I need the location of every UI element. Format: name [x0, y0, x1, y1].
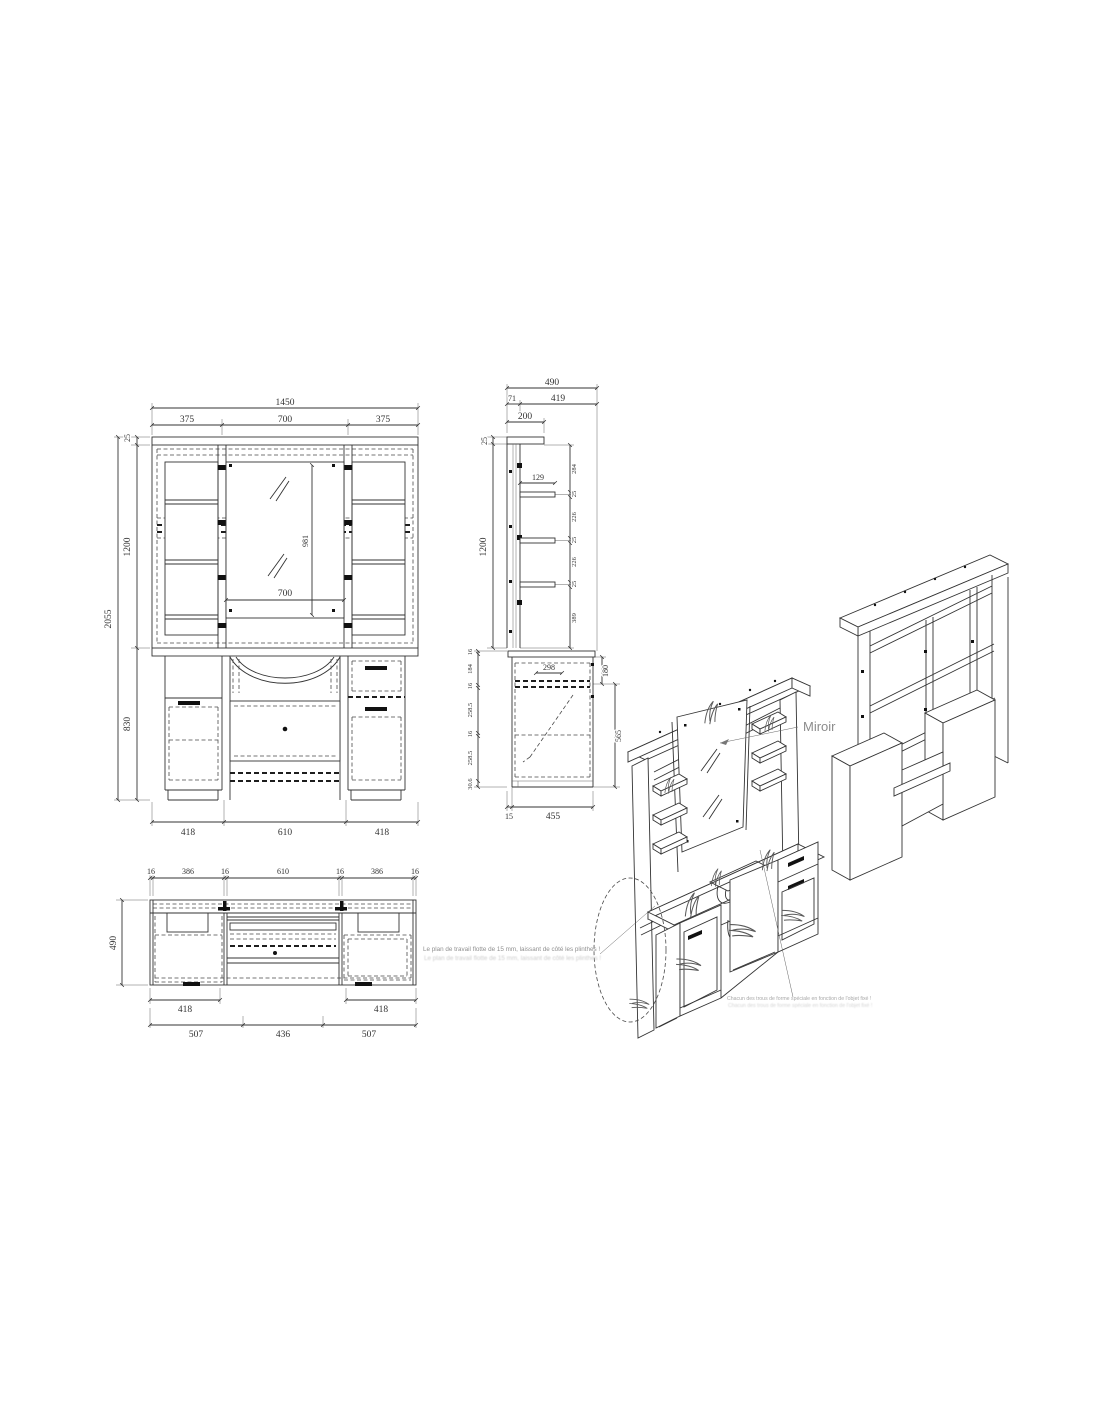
plan-knob	[273, 951, 277, 955]
front-right-shelf-tower	[352, 462, 405, 635]
dim-plan-t6: 386	[371, 867, 383, 876]
isometric-back-view	[830, 520, 1100, 890]
plan-view: 16 386 16 610 16 386 16 490 418 418 507 …	[105, 860, 445, 1045]
side-shelves	[520, 492, 555, 587]
dim-side-shelf-depth: 200	[518, 412, 533, 422]
iso-back-cornice	[840, 555, 1008, 636]
dim-side-r2: 25	[571, 491, 578, 498]
front-basin	[230, 657, 340, 693]
dim-plan-t3: 16	[221, 867, 229, 876]
iso-left-stile	[632, 758, 654, 1038]
iso-back-left-pedestal	[832, 733, 902, 880]
iso-right-pedestal	[730, 842, 818, 972]
note-fixation-ghost: Chacun des trous de forme spéciale en fo…	[728, 1003, 872, 1009]
note-fixation: Chacun des trous de forme spéciale en fo…	[727, 996, 871, 1002]
dim-plan-depth: 490	[109, 936, 119, 951]
note-worktop-ghost: Le plan de travail flotte de 15 mm, lais…	[424, 955, 601, 962]
dim-side-r3: 226	[571, 511, 578, 522]
dim-side-overall-depth: 490	[545, 378, 560, 388]
iso-mirror	[677, 700, 747, 852]
dim-plan-b2: 436	[276, 1030, 291, 1040]
dim-front-mirror-height: 981	[301, 535, 310, 547]
dim-plan-t7: 16	[411, 867, 419, 876]
front-right-door-handle	[365, 707, 387, 711]
dim-side-l4: 258.5	[467, 703, 474, 718]
front-right-pedestal	[348, 656, 405, 800]
dim-side-r5: 226	[571, 556, 578, 567]
dim-side-b2: 455	[546, 812, 561, 822]
dim-plan-left-418: 418	[178, 1005, 193, 1015]
dim-front-mid-width: 700	[278, 415, 293, 425]
side-top-board	[507, 437, 544, 444]
dim-front-upper-height: 1200	[123, 537, 133, 556]
dim-front-right-width: 375	[376, 415, 391, 425]
dim-side-front-depth: 419	[551, 394, 566, 404]
front-left-door-handle	[178, 701, 200, 705]
front-top-board	[152, 437, 418, 445]
dim-front-mirror-width: 700	[278, 589, 293, 599]
dim-front-bottom-right: 418	[375, 828, 390, 838]
front-left-shelf-tower	[165, 462, 218, 635]
dim-side-l1: 16	[467, 648, 474, 655]
dim-side-back-depth: 71	[508, 394, 516, 403]
dim-front-bottom-left: 418	[181, 828, 196, 838]
side-left-dim-column: 16 184 16 258.5 16 258.5 30.6	[467, 648, 478, 790]
side-right-dim-column: 284 25 226 25 226 25 389	[570, 445, 578, 648]
dim-plan-b1: 507	[189, 1030, 204, 1040]
dim-plan-t2: 386	[182, 867, 194, 876]
dim-side-top-thickness: 25	[480, 437, 489, 445]
dim-side-r6: 25	[571, 581, 578, 588]
dim-front-lower-height: 830	[123, 717, 133, 732]
plan-left-handle	[183, 982, 200, 986]
dim-side-r4: 25	[571, 537, 578, 544]
front-centre-drawer	[230, 701, 340, 781]
dim-plan-t5: 16	[336, 867, 344, 876]
dim-plan-right-418: 418	[374, 1005, 389, 1015]
dim-front-left-width: 375	[180, 415, 195, 425]
dim-front-total-height: 2055	[104, 609, 114, 628]
technical-drawing-sheet: 1450 375 700 375 2055 25 1200 830	[0, 0, 1100, 1422]
front-drawer-knob	[283, 727, 288, 732]
dim-side-l5: 16	[467, 730, 474, 737]
dim-front-top-thickness: 25	[123, 434, 132, 442]
dim-side-r1: 284	[571, 463, 578, 474]
plan-top-dims: 16 386 16 610 16 386 16	[147, 867, 419, 878]
dim-side-l3: 16	[467, 682, 474, 689]
dim-side-l7: 30.6	[467, 778, 474, 790]
dim-side-l2: 184	[467, 663, 474, 674]
side-back-panel	[507, 444, 522, 648]
front-desktop	[152, 648, 418, 656]
dim-plan-t1: 16	[147, 867, 155, 876]
dim-side-l6: 258.5	[467, 751, 474, 766]
dim-front-overall-width: 1450	[276, 398, 295, 408]
dim-front-bottom-mid: 610	[278, 828, 293, 838]
dim-side-upper-height: 1200	[479, 537, 489, 556]
note-worktop: Le plan de travail flotte de 15 mm, lais…	[423, 946, 600, 953]
dim-plan-t4: 610	[277, 867, 289, 876]
dim-plan-b3: 507	[362, 1030, 377, 1040]
dim-side-shelf-length: 129	[532, 473, 544, 482]
dim-side-inner: 298	[543, 663, 555, 672]
plan-right-handle	[355, 982, 372, 986]
dim-side-b1: 15	[505, 812, 513, 821]
front-right-drawer-handle	[365, 666, 387, 670]
front-elevation-view: 1450 375 700 375 2055 25 1200 830	[100, 385, 440, 845]
front-left-pedestal	[165, 656, 222, 800]
